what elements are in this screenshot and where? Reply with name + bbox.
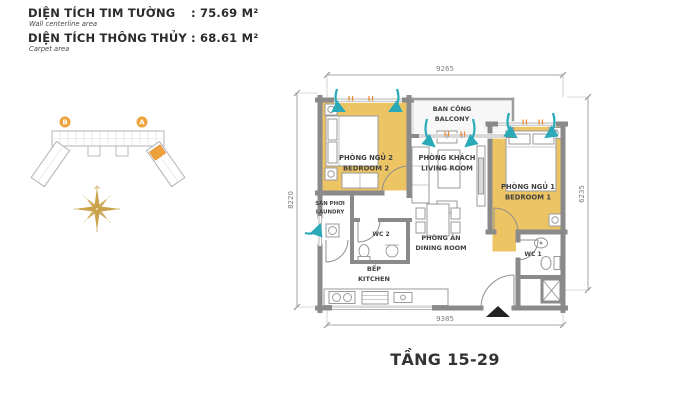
dim-left: 8220 (287, 191, 295, 209)
label-wc2: WC 2 (372, 231, 389, 238)
key-plan-right-wing (146, 141, 184, 186)
tower-a-label: A (139, 119, 145, 127)
label-wc1: WC 1 (524, 251, 541, 258)
floor-range-title: TẦNG 15-29 (365, 350, 525, 369)
label-bedroom2-en: BEDROOM 2 (343, 165, 389, 173)
tower-a-badge: A (137, 117, 148, 128)
label-bedroom2-vi: PHÒNG NGỦ 2 (339, 152, 393, 162)
label-balcony-vi: BAN CÔNG (433, 104, 472, 113)
label-living-en: LIVING ROOM (421, 165, 473, 173)
floorplan-page: DIỆN TÍCH TIM TƯỜNG : 75.69 M² Wall cent… (0, 0, 700, 400)
label-laundry-en: LAUNDRY (316, 210, 345, 216)
key-plan: B A (31, 117, 185, 233)
dim-bottom: 9385 (436, 315, 454, 323)
label-laundry-vi: SÂN PHƠI (315, 200, 345, 207)
plan-canvas: B A (0, 0, 700, 400)
label-bedroom1-en: BEDROOM 1 (505, 194, 551, 202)
key-plan-left-wing (31, 141, 69, 186)
tower-b-label: B (62, 119, 67, 127)
shaft-x (542, 279, 561, 302)
label-dining-en: DINING ROOM (415, 244, 466, 252)
compass-rose-icon (74, 186, 120, 232)
label-balcony-en: BALCONY (435, 115, 470, 123)
airflow-arrow-icon (305, 225, 320, 234)
label-dining-vi: PHÒNG ĂN (421, 233, 460, 242)
entrance-marker-icon (486, 306, 510, 317)
label-kitchen-vi: BẾP (367, 263, 381, 273)
label-kitchen-en: KITCHEN (358, 275, 390, 283)
label-living-vi: PHÒNG KHÁCH (419, 153, 476, 162)
dim-top: 9265 (436, 65, 454, 73)
tower-b-badge: B (60, 117, 71, 128)
dim-right: 6235 (578, 185, 586, 203)
label-bedroom1-vi: PHÒNG NGỦ 1 (501, 181, 555, 191)
floor-plan: 9265 9385 8220 6235 BAN CÔNG BALCONY PHÒ… (287, 65, 591, 328)
